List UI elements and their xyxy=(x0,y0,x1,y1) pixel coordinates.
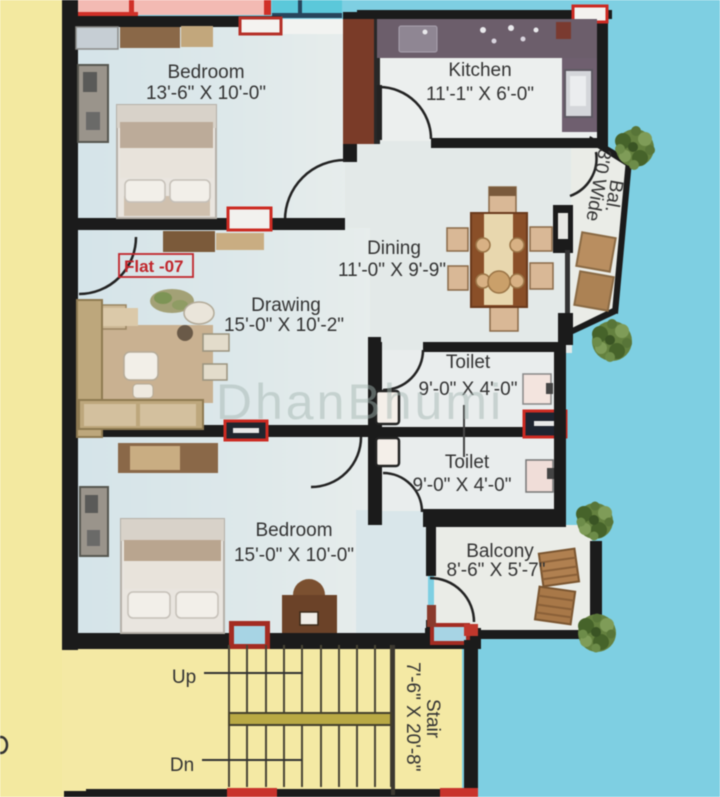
svg-text:Kitchen: Kitchen xyxy=(448,60,511,81)
svg-text:Flat -07: Flat -07 xyxy=(124,257,184,276)
svg-text:7'-6" X 20'-8": 7'-6" X 20'-8" xyxy=(402,662,423,771)
svg-text:8'-6" X 5'-7": 8'-6" X 5'-7" xyxy=(447,560,546,581)
svg-text:11'-1" X 6'-0": 11'-1" X 6'-0" xyxy=(426,84,534,105)
svg-text:Toilet: Toilet xyxy=(445,452,490,473)
svg-text:DhanBhumi: DhanBhumi xyxy=(216,374,504,430)
svg-text:9'-0" X 4'-0": 9'-0" X 4'-0" xyxy=(413,475,512,496)
svg-text:Bedroom: Bedroom xyxy=(255,520,332,541)
svg-text:13'-6" X 10'-0": 13'-6" X 10'-0" xyxy=(146,83,266,104)
svg-text:Up: Up xyxy=(172,667,196,688)
svg-text:Bedroom: Bedroom xyxy=(167,62,244,83)
svg-text:Drawing: Drawing xyxy=(251,295,321,316)
svg-text:Dining: Dining xyxy=(367,238,421,259)
svg-text:Toilet: Toilet xyxy=(446,352,491,373)
svg-text:Stair: Stair xyxy=(422,699,443,739)
svg-text:Balcony: Balcony xyxy=(466,541,534,562)
svg-text:15'-0" X 10'-0": 15'-0" X 10'-0" xyxy=(234,545,354,566)
svg-text:Dn: Dn xyxy=(170,755,194,776)
svg-text:11'-0" X 9'-9": 11'-0" X 9'-9" xyxy=(338,260,446,281)
svg-text:15'-0" X 10'-2": 15'-0" X 10'-2" xyxy=(224,315,344,336)
